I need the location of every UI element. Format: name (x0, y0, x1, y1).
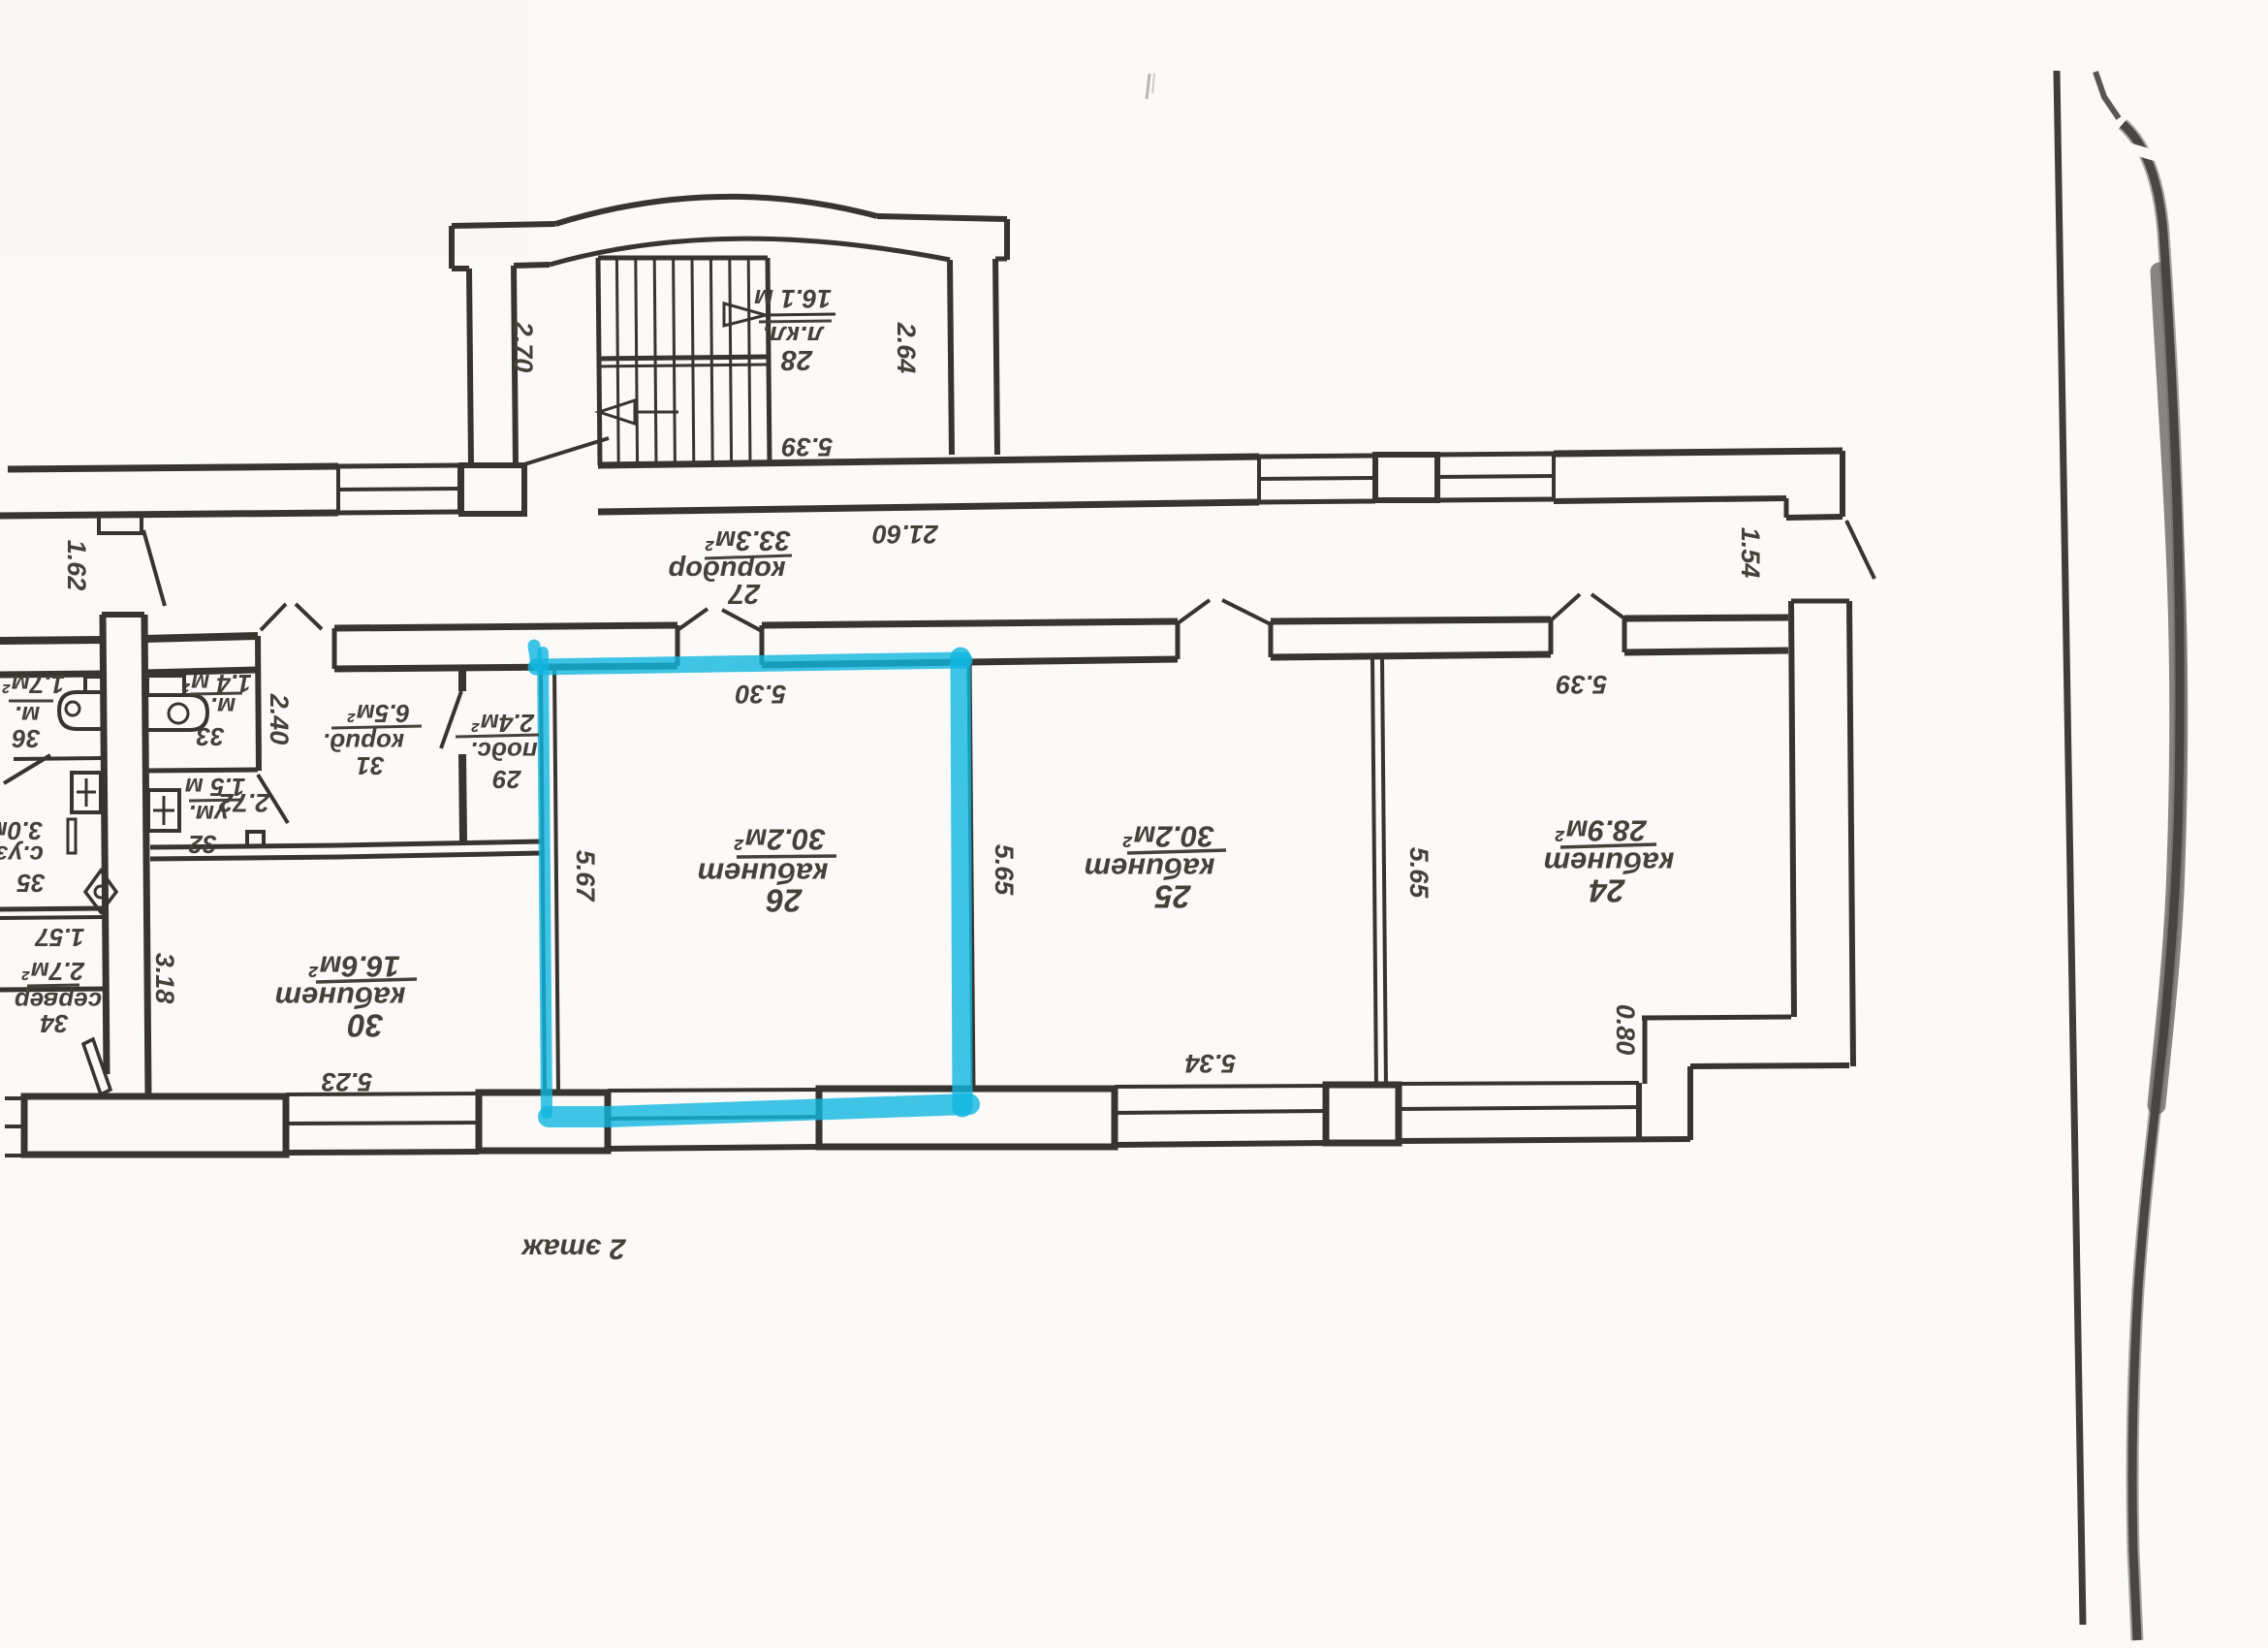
svg-text:кабинет: кабинет (698, 857, 829, 891)
svg-text:16.1 м: 16.1 м (754, 284, 832, 313)
svg-text:2.40: 2.40 (265, 693, 294, 745)
svg-text:33: 33 (196, 722, 224, 751)
svg-text:5.65: 5.65 (1404, 847, 1433, 900)
svg-text:33.3м²: 33.3м² (705, 524, 791, 555)
svg-text:0.80: 0.80 (1611, 1004, 1640, 1056)
svg-text:25: 25 (1154, 879, 1191, 915)
svg-text:27: 27 (727, 578, 761, 609)
svg-text:5.67: 5.67 (571, 850, 600, 903)
svg-text:35: 35 (16, 869, 45, 898)
svg-text:26: 26 (766, 883, 803, 919)
svg-text:5.39: 5.39 (1557, 670, 1608, 699)
svg-text:36: 36 (12, 724, 40, 753)
svg-text:31: 31 (357, 751, 385, 780)
svg-text:с.уз: с.уз (0, 840, 44, 870)
svg-text:34: 34 (40, 1009, 68, 1038)
svg-text:28: 28 (780, 344, 813, 375)
svg-text:3.18: 3.18 (150, 953, 179, 1004)
svg-text:подс.: подс. (470, 737, 538, 766)
svg-text:24: 24 (1590, 873, 1626, 909)
svg-text:30: 30 (347, 1008, 383, 1044)
svg-text:2.70: 2.70 (509, 321, 538, 373)
svg-text:28.9м²: 28.9м² (1556, 814, 1648, 848)
svg-text:6.5м²: 6.5м² (347, 699, 410, 728)
svg-text:1.54: 1.54 (1736, 527, 1765, 579)
svg-text:1.62: 1.62 (62, 540, 91, 591)
svg-text:29: 29 (492, 765, 521, 794)
svg-text:21.60: 21.60 (872, 520, 939, 549)
svg-text:2.7м²: 2.7м² (21, 957, 85, 986)
svg-text:2.4м²: 2.4м² (471, 709, 535, 738)
svg-text:5.65: 5.65 (990, 844, 1019, 897)
svg-text:30.2м²: 30.2м² (735, 823, 826, 857)
svg-text:1.57: 1.57 (34, 923, 84, 952)
svg-text:5.39: 5.39 (782, 432, 834, 461)
svg-text:2.72: 2.72 (219, 788, 271, 817)
svg-text:5.34: 5.34 (1185, 1049, 1237, 1078)
svg-text:кабинет: кабинет (1085, 852, 1215, 886)
svg-text:5.30: 5.30 (736, 680, 787, 709)
svg-text:2.64: 2.64 (892, 322, 921, 374)
svg-text:м.: м. (210, 692, 236, 721)
svg-text:2 этаж: 2 этаж (520, 1233, 627, 1265)
svg-text:5.23: 5.23 (322, 1067, 373, 1096)
svg-text:коридор: коридор (668, 555, 785, 586)
svg-text:30.2м²: 30.2м² (1123, 820, 1214, 854)
svg-text:32: 32 (188, 830, 216, 859)
svg-text:кабинет: кабинет (275, 981, 406, 1015)
svg-text:1.7м²: 1.7м² (2, 670, 65, 699)
